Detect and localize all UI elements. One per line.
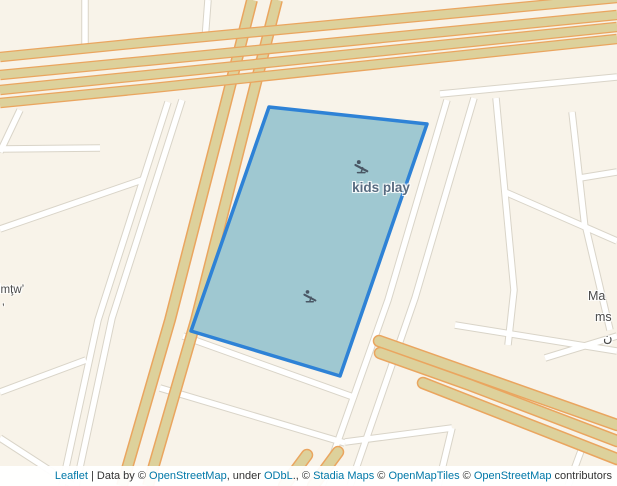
roads-minor-segment [0, 180, 142, 229]
roads-minor-segment [455, 325, 617, 351]
roads-minor-segment [580, 172, 617, 178]
roads-minor-segment [440, 77, 617, 94]
attribution-text: © [460, 470, 474, 482]
attribution-link[interactable]: OpenMapTiles [388, 470, 459, 482]
roads-minor-segment [0, 148, 100, 149]
attribution-link[interactable]: OpenStreetMap [149, 470, 227, 482]
attribution-text: © [374, 470, 388, 482]
roads-minor-segment [505, 192, 617, 241]
road-network [0, 0, 617, 486]
roads-minor-segment [160, 388, 345, 443]
attribution-link[interactable]: OpenStreetMap [474, 470, 552, 482]
attribution-text: , under [227, 470, 264, 482]
roads-minor-segment [586, 228, 610, 330]
attribution-text: ., © [293, 470, 313, 482]
roads-minor-segment [572, 112, 585, 228]
roads-minor-segment [345, 428, 452, 442]
roads-highway-segment [0, 27, 617, 90]
roads-minor-segment [0, 360, 86, 392]
attribution-link[interactable]: Leaflet [55, 470, 88, 482]
attribution-bar: Leaflet | Data by © OpenStreetMap, under… [0, 466, 617, 486]
map-canvas[interactable]: kids playlmţw’’Mamsن Leaflet | Data by ©… [0, 0, 617, 486]
attribution-link[interactable]: ODbL [264, 470, 293, 482]
attribution-text: | Data by © [88, 470, 149, 482]
roads-ramp-fan-segment [380, 353, 617, 441]
selected-area-polygon[interactable] [191, 107, 427, 376]
attribution-link[interactable]: Stadia Maps [313, 470, 374, 482]
attribution-text: contributors [551, 470, 612, 482]
